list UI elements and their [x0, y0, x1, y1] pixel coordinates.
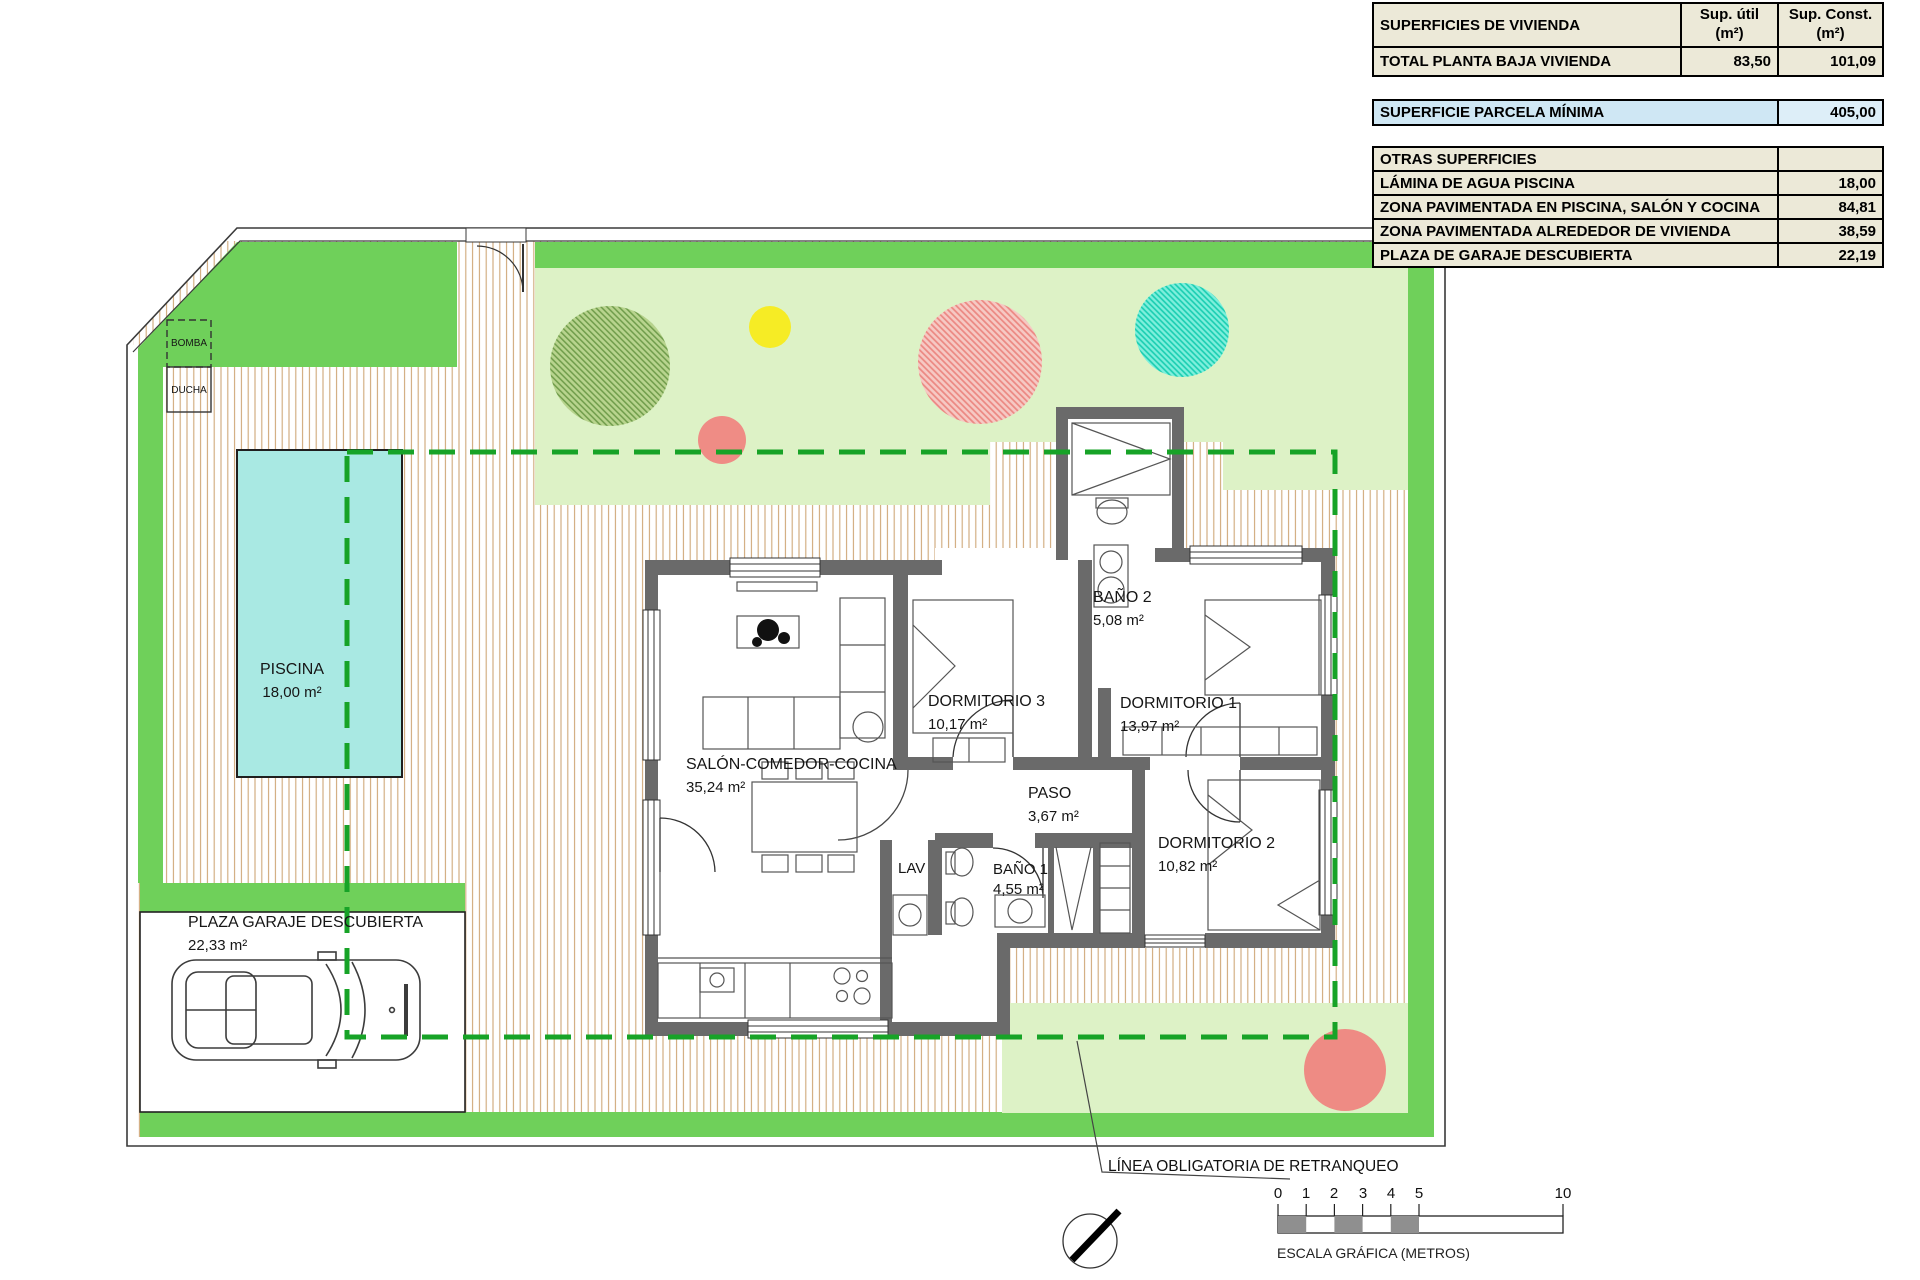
col-sup-const: Sup. Const. (m²): [1778, 3, 1883, 47]
paso-area: 3,67 m²: [1028, 806, 1079, 829]
garaje-name: PLAZA GARAJE DESCUBIERTA: [188, 911, 423, 935]
scale-tick-4: 4: [1387, 1185, 1395, 1202]
bano1-area: 4,55 m²: [993, 880, 1048, 900]
dormitorio3-name: DORMITORIO 3: [928, 690, 1045, 714]
col-sup-const-line2: (m²): [1785, 25, 1876, 44]
total-planta-const: 101,09: [1778, 47, 1883, 76]
col-sup-const-line1: Sup. Const.: [1785, 6, 1876, 25]
parcela-label: SUPERFICIE PARCELA MÍNIMA: [1373, 100, 1778, 125]
tree-teal-icon: [1135, 283, 1229, 377]
table-row: PLAZA DE GARAJE DESCUBIERTA 22,19: [1373, 243, 1883, 267]
table-row: ZONA PAVIMENTADA EN PISCINA, SALÓN Y COC…: [1373, 195, 1883, 219]
bano2-label: BAÑO 2 5,08 m²: [1093, 586, 1152, 633]
scale-tick-2: 2: [1330, 1185, 1338, 1202]
parcela-table: SUPERFICIE PARCELA MÍNIMA 405,00: [1372, 99, 1884, 126]
dormitorio2-label: DORMITORIO 2 10,82 m²: [1158, 832, 1275, 879]
garaje-label: PLAZA GARAJE DESCUBIERTA 22,33 m²: [188, 911, 423, 958]
col-sup-util: Sup. útil (m²): [1681, 3, 1778, 47]
scale-tick-1: 1: [1302, 1185, 1310, 1202]
dormitorio2-area: 10,82 m²: [1158, 856, 1275, 879]
tree-red-icon: [918, 300, 1042, 424]
dormitorio2-name: DORMITORIO 2: [1158, 832, 1275, 856]
bano1-label: BAÑO 1 4,55 m²: [993, 860, 1048, 901]
scale-tick-10: 10: [1555, 1185, 1572, 1202]
scale-caption: ESCALA GRÁFICA (METROS): [1277, 1245, 1470, 1261]
paso-name: PASO: [1028, 782, 1079, 806]
entrance-gate: [466, 228, 526, 242]
otras-row-label: ZONA PAVIMENTADA ALREDEDOR DE VIVIENDA: [1373, 219, 1778, 243]
margin-bottom: [127, 1137, 1445, 1146]
margin-right: [1434, 241, 1445, 1146]
ducha-name: DUCHA: [171, 385, 207, 396]
table-row: TOTAL PLANTA BAJA VIVIENDA 83,50 101,09: [1373, 47, 1883, 76]
scale-tick-3: 3: [1359, 1185, 1367, 1202]
retranqueo-annotation: LÍNEA OBLIGATORIA DE RETRANQUEO: [1108, 1158, 1399, 1176]
otras-header: OTRAS SUPERFICIES: [1373, 147, 1778, 171]
bomba-name: BOMBA: [171, 338, 207, 349]
otras-superficies-table: OTRAS SUPERFICIES LÁMINA DE AGUA PISCINA…: [1372, 146, 1884, 268]
dormitorio1-area: 13,97 m²: [1120, 716, 1237, 739]
otras-row-value: 84,81: [1778, 195, 1883, 219]
surfaces-table-title: SUPERFICIES DE VIVIENDA: [1373, 3, 1681, 47]
col-sup-util-line1: Sup. útil: [1688, 6, 1771, 25]
salon-area: 35,24 m²: [686, 777, 897, 800]
salon-name: SALÓN-COMEDOR-COCINA: [686, 753, 897, 777]
pool-name: PISCINA: [260, 658, 324, 682]
shrub-red-icon: [698, 416, 746, 464]
shrub-red-south-icon: [1304, 1029, 1386, 1111]
lawn-bottom-strip: [140, 1112, 1437, 1137]
dormitorio3-label: DORMITORIO 3 10,17 m²: [928, 690, 1045, 737]
otras-row-label: ZONA PAVIMENTADA EN PISCINA, SALÓN Y COC…: [1373, 195, 1778, 219]
otras-row-label: PLAZA DE GARAJE DESCUBIERTA: [1373, 243, 1778, 267]
surfaces-table: SUPERFICIES DE VIVIENDA Sup. útil (m²) S…: [1372, 2, 1884, 77]
north-arrow-icon: [1063, 1211, 1119, 1268]
otras-row-value: 18,00: [1778, 171, 1883, 195]
scale-bar: [1278, 1204, 1563, 1233]
bano2-name: BAÑO 2: [1093, 586, 1152, 610]
site-plan-page: PISCINA 18,00 m² SALÓN-COMEDOR-COCINA 35…: [0, 0, 1920, 1280]
salon-label: SALÓN-COMEDOR-COCINA 35,24 m²: [686, 753, 897, 800]
ducha-label: DUCHA: [171, 386, 207, 396]
shrub-yellow-icon: [749, 306, 791, 348]
total-planta-label: TOTAL PLANTA BAJA VIVIENDA: [1373, 47, 1681, 76]
dormitorio1-name: DORMITORIO 1: [1120, 692, 1237, 716]
bano2-area: 5,08 m²: [1093, 610, 1152, 633]
lawn-right-strip: [1408, 268, 1434, 1113]
otras-header-value: [1778, 147, 1883, 171]
dormitorio1-label: DORMITORIO 1 13,97 m²: [1120, 692, 1237, 739]
pool-area: 18,00 m²: [260, 682, 324, 705]
lawn-top-strip: [535, 242, 1437, 268]
total-planta-util: 83,50: [1681, 47, 1778, 76]
lav-name: LAV: [898, 858, 925, 881]
lawn-garage-strip: [140, 883, 465, 912]
lav-label: LAV: [898, 858, 925, 881]
paso-label: PASO 3,67 m²: [1028, 782, 1079, 829]
table-row: LÁMINA DE AGUA PISCINA 18,00: [1373, 171, 1883, 195]
otras-row-value: 22,19: [1778, 243, 1883, 267]
col-sup-util-line2: (m²): [1688, 25, 1771, 44]
dormitorio3-area: 10,17 m²: [928, 714, 1045, 737]
bano1-name: BAÑO 1: [993, 860, 1048, 880]
garaje-area: 22,33 m²: [188, 935, 423, 958]
table-row: ZONA PAVIMENTADA ALREDEDOR DE VIVIENDA 3…: [1373, 219, 1883, 243]
table-row: SUPERFICIE PARCELA MÍNIMA 405,00: [1373, 100, 1883, 125]
parcela-value: 405,00: [1778, 100, 1883, 125]
otras-row-label: LÁMINA DE AGUA PISCINA: [1373, 171, 1778, 195]
scale-tick-5: 5: [1415, 1185, 1423, 1202]
bomba-label: BOMBA: [171, 339, 207, 349]
otras-row-value: 38,59: [1778, 219, 1883, 243]
table-row: OTRAS SUPERFICIES: [1373, 147, 1883, 171]
margin-left: [127, 345, 138, 1146]
pool-rect: [237, 450, 402, 777]
scale-tick-0: 0: [1274, 1185, 1282, 1202]
pool-label: PISCINA 18,00 m²: [260, 658, 324, 705]
tree-olive-icon: [550, 306, 670, 426]
